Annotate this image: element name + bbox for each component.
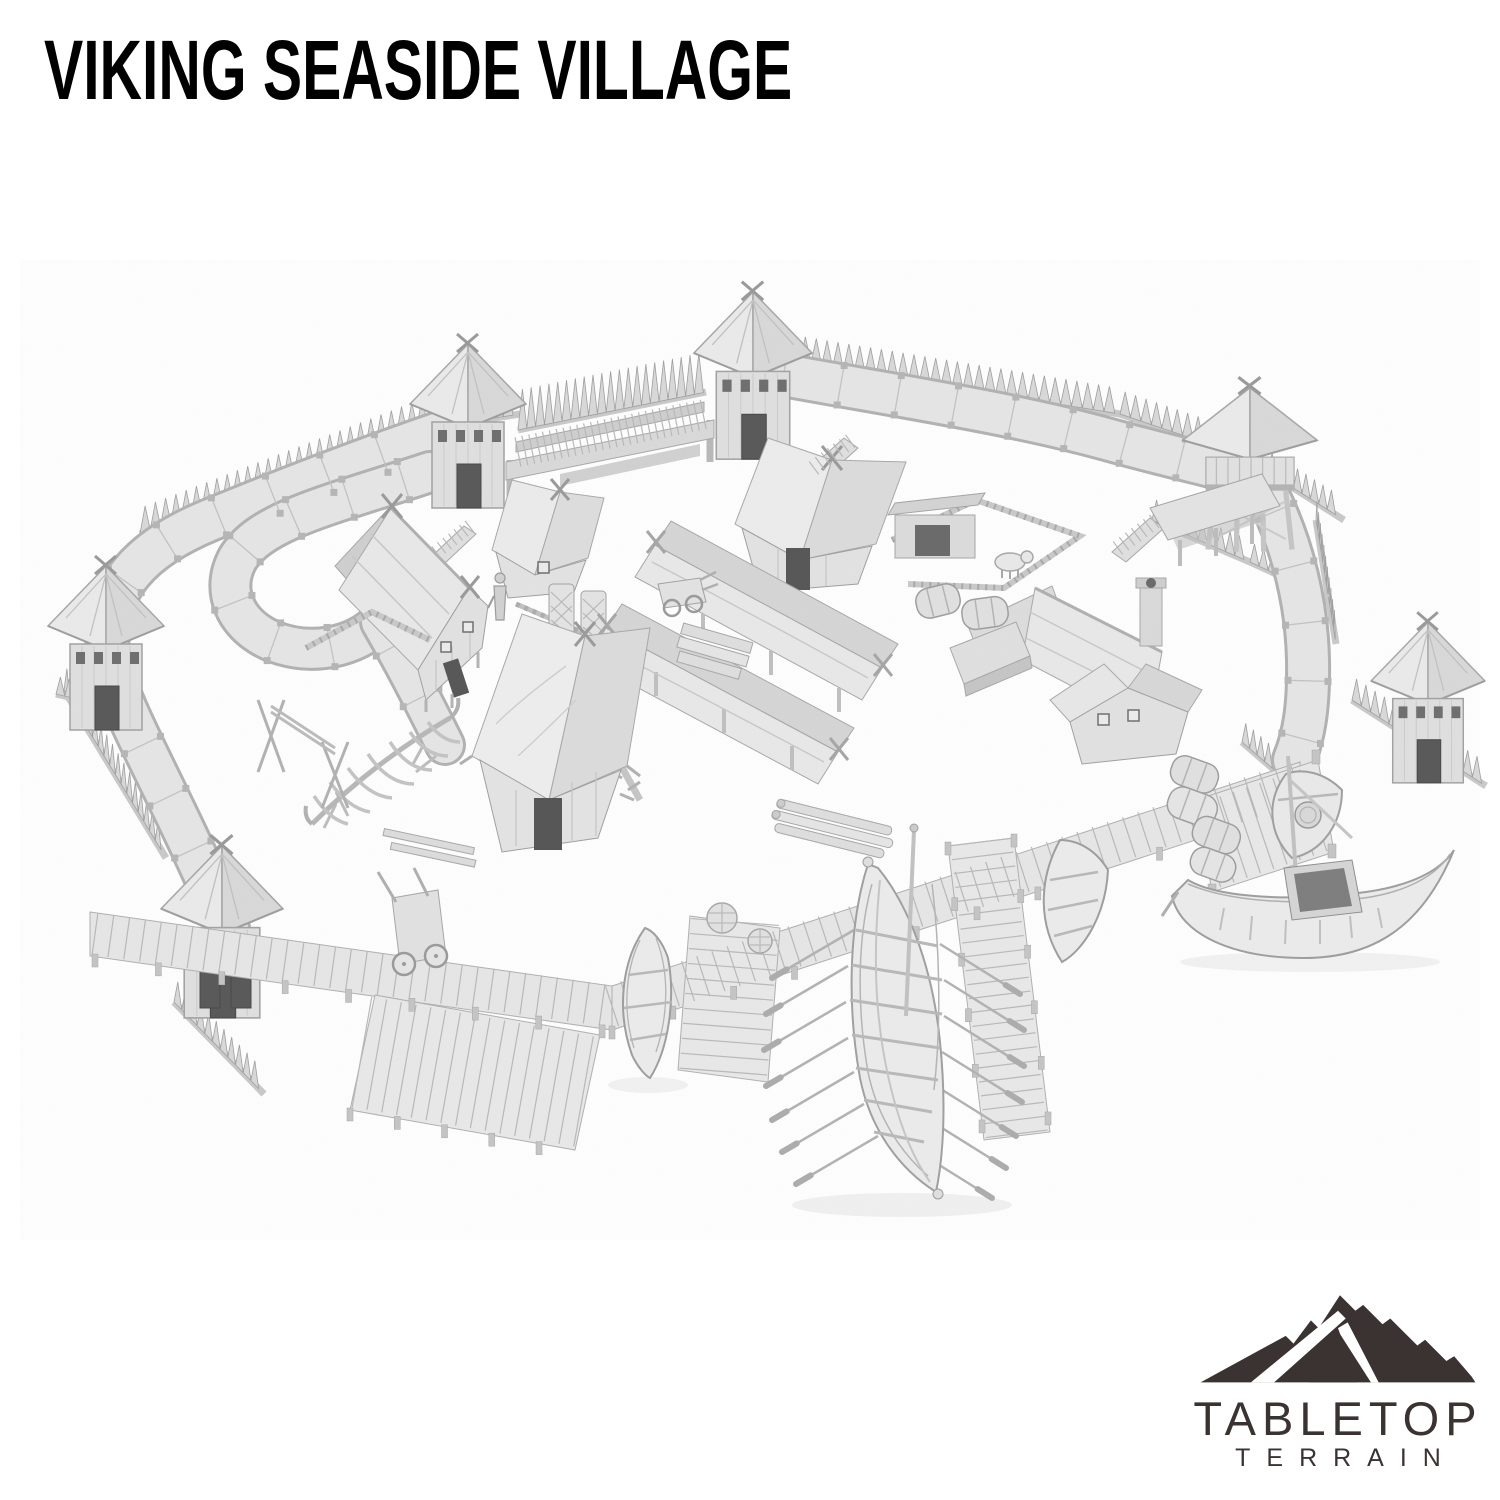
mountain-logo-icon bbox=[1192, 1272, 1484, 1392]
brand-name: TABLETOP bbox=[1192, 1394, 1484, 1443]
brand-subname: TERRAIN bbox=[1192, 1445, 1484, 1473]
brand-logo: TABLETOP TERRAIN bbox=[1192, 1272, 1484, 1473]
product-page: VIKING SEASIDE VILLAGE bbox=[0, 0, 1500, 1500]
render-grain-texture bbox=[20, 260, 1480, 1240]
